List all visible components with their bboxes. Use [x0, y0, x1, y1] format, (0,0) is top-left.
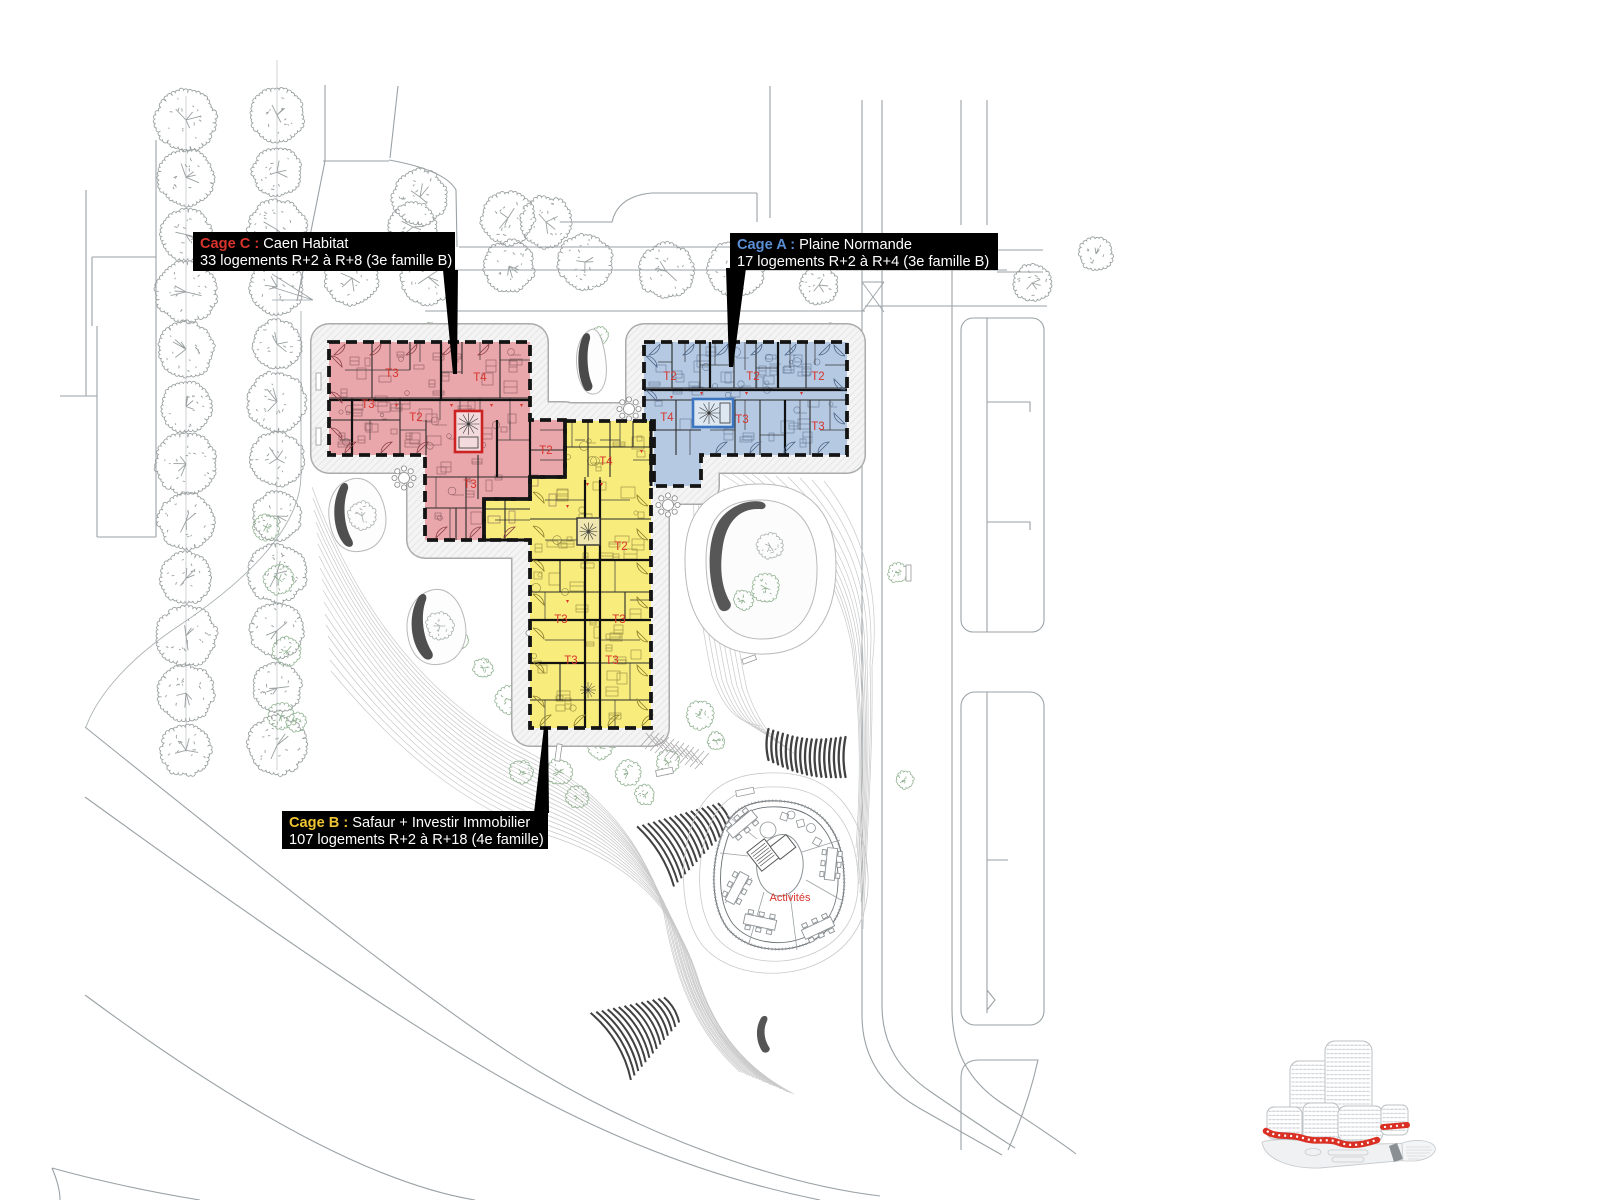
svg-text:T3: T3 — [811, 421, 824, 433]
svg-text:T3: T3 — [463, 479, 476, 491]
svg-text:T3: T3 — [361, 399, 374, 411]
svg-text:Cage C : Caen Habitat: Cage C : Caen Habitat — [200, 236, 348, 252]
svg-text:T2: T2 — [811, 371, 824, 383]
svg-text:T3: T3 — [385, 368, 398, 380]
svg-text:T3: T3 — [612, 614, 625, 626]
svg-text:T4: T4 — [660, 412, 674, 424]
svg-text:Activités: Activités — [770, 892, 811, 904]
svg-text:T3: T3 — [554, 614, 567, 626]
svg-text:T3: T3 — [564, 655, 577, 667]
svg-text:T2: T2 — [746, 371, 759, 383]
svg-text:T2: T2 — [663, 371, 676, 383]
svg-text:T3: T3 — [605, 655, 618, 667]
svg-text:33 logements R+2 à R+8 (3e fam: 33 logements R+2 à R+8 (3e famille B) — [200, 253, 452, 269]
svg-text:107 logements R+2 à R+18 (4e f: 107 logements R+2 à R+18 (4e famille) — [289, 832, 544, 848]
svg-text:T4: T4 — [599, 456, 613, 468]
svg-text:T2: T2 — [614, 541, 627, 553]
svg-text:17 logements R+2 à R+4 (3e fam: 17 logements R+2 à R+4 (3e famille B) — [737, 254, 989, 270]
svg-text:T4: T4 — [473, 372, 487, 384]
svg-text:T2: T2 — [409, 412, 422, 424]
svg-text:Cage A : Plaine Normande: Cage A : Plaine Normande — [737, 237, 912, 253]
svg-text:T2: T2 — [539, 445, 552, 457]
svg-text:Cage B : Safaur + Investir Imm: Cage B : Safaur + Investir Immobilier — [289, 815, 530, 831]
svg-text:T3: T3 — [735, 414, 748, 426]
